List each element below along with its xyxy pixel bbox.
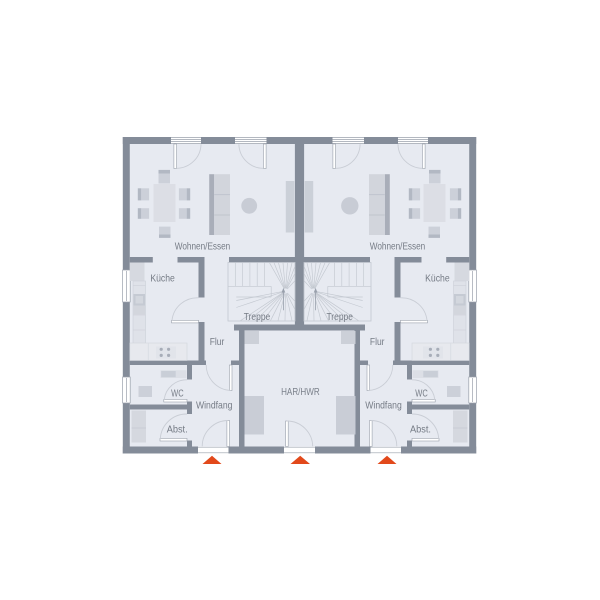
svg-text:Wohnen/Essen: Wohnen/Essen (370, 240, 426, 252)
svg-text:Treppe: Treppe (326, 311, 353, 323)
svg-text:Flur: Flur (370, 336, 385, 348)
svg-text:Abst.: Abst. (410, 423, 431, 435)
svg-text:Treppe: Treppe (244, 311, 271, 323)
svg-text:Windfang: Windfang (365, 400, 402, 412)
svg-text:Windfang: Windfang (196, 400, 233, 412)
svg-text:Wohnen/Essen: Wohnen/Essen (175, 240, 231, 252)
svg-text:Abst.: Abst. (167, 423, 188, 435)
svg-text:Küche: Küche (150, 273, 175, 285)
svg-text:HAR/HWR: HAR/HWR (281, 387, 320, 398)
svg-text:WC: WC (415, 387, 428, 399)
svg-text:Flur: Flur (210, 336, 225, 348)
svg-text:WC: WC (171, 387, 184, 399)
svg-text:Küche: Küche (425, 273, 450, 285)
